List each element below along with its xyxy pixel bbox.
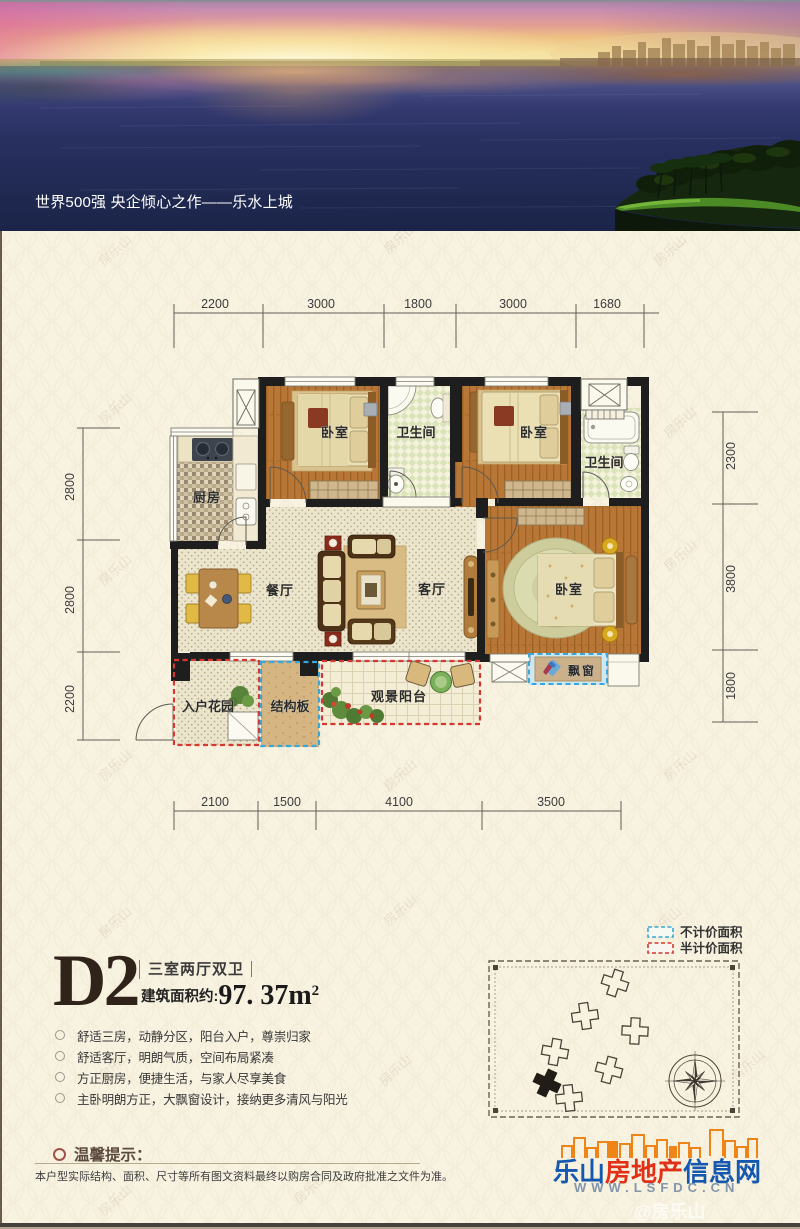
svg-text:2300: 2300 bbox=[724, 442, 738, 470]
svg-text:餐厅: 餐厅 bbox=[265, 583, 294, 598]
svg-text:世界500强 央企倾心之作——乐水上城: 世界500强 央企倾心之作——乐水上城 bbox=[35, 193, 293, 211]
svg-text:卧室: 卧室 bbox=[520, 425, 548, 440]
svg-text:飘窗: 飘窗 bbox=[568, 663, 596, 678]
svg-text:卫生间: 卫生间 bbox=[396, 425, 435, 440]
svg-text:3800: 3800 bbox=[724, 565, 738, 593]
svg-text:3000: 3000 bbox=[499, 297, 527, 311]
svg-text:厨房: 厨房 bbox=[193, 490, 221, 505]
svg-text:观景阳台: 观景阳台 bbox=[371, 689, 427, 704]
svg-text:1800: 1800 bbox=[724, 672, 738, 700]
svg-text:2200: 2200 bbox=[201, 297, 229, 311]
svg-text:3500: 3500 bbox=[537, 795, 565, 809]
svg-text:2800: 2800 bbox=[63, 473, 77, 501]
svg-text:2800: 2800 bbox=[63, 586, 77, 614]
svg-text:2200: 2200 bbox=[63, 685, 77, 713]
svg-text:客厅: 客厅 bbox=[418, 582, 446, 597]
svg-text:卧室: 卧室 bbox=[555, 582, 583, 597]
svg-text:1680: 1680 bbox=[593, 297, 621, 311]
svg-text:1800: 1800 bbox=[404, 297, 432, 311]
svg-text:不计价面积: 不计价面积 bbox=[680, 925, 743, 940]
svg-text:1500: 1500 bbox=[273, 795, 301, 809]
svg-text:3000: 3000 bbox=[307, 297, 335, 311]
svg-text:2100: 2100 bbox=[201, 795, 229, 809]
svg-text:结构板: 结构板 bbox=[270, 699, 310, 714]
svg-text:入户花园: 入户花园 bbox=[182, 699, 234, 714]
svg-text:卧室: 卧室 bbox=[321, 425, 349, 440]
svg-text:WWW.LSFDC.CN: WWW.LSFDC.CN bbox=[574, 1180, 739, 1195]
svg-text:卫生间: 卫生间 bbox=[584, 455, 623, 470]
svg-text:4100: 4100 bbox=[385, 795, 413, 809]
